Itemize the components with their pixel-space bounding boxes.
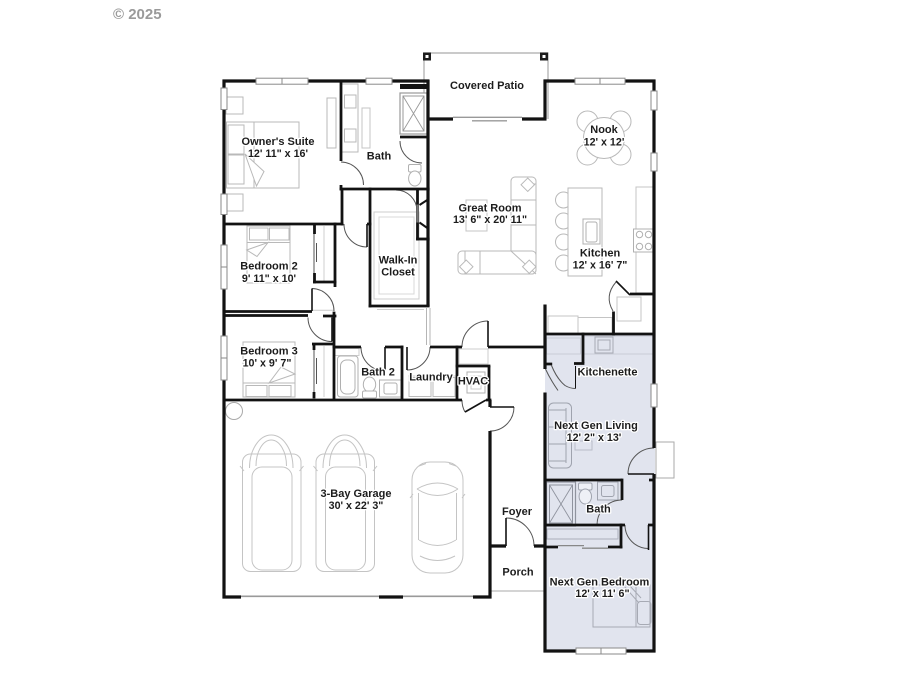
svg-text:Bath: Bath — [367, 151, 392, 163]
svg-text:HVAC: HVAC — [458, 376, 488, 388]
svg-text:13' 6" x 20' 11": 13' 6" x 20' 11" — [453, 214, 527, 226]
svg-text:Next Gen Living: Next Gen Living — [554, 420, 638, 432]
svg-text:© 2025: © 2025 — [113, 6, 162, 23]
svg-text:Bedroom 2: Bedroom 2 — [240, 261, 297, 273]
svg-text:Covered Patio: Covered Patio — [450, 80, 524, 92]
svg-text:30' x 22' 3": 30' x 22' 3" — [329, 500, 384, 512]
svg-text:Owner's Suite: Owner's Suite — [242, 136, 315, 148]
svg-text:Porch: Porch — [502, 567, 533, 579]
svg-text:3-Bay Garage: 3-Bay Garage — [321, 488, 392, 500]
svg-text:9' 11" x 10': 9' 11" x 10' — [242, 273, 296, 285]
svg-text:Nook: Nook — [590, 124, 618, 136]
svg-text:12' 11" x 16': 12' 11" x 16' — [248, 148, 308, 160]
svg-text:Closet: Closet — [381, 267, 415, 279]
svg-text:12' 2" x 13': 12' 2" x 13' — [567, 432, 622, 444]
svg-text:Great Room: Great Room — [459, 203, 522, 215]
svg-text:Walk-In: Walk-In — [379, 255, 418, 267]
svg-text:Kitchenette: Kitchenette — [578, 367, 638, 379]
svg-text:Kitchen: Kitchen — [580, 248, 621, 260]
svg-text:10' x 9' 7": 10' x 9' 7" — [243, 358, 292, 370]
svg-text:Next Gen Bedroom: Next Gen Bedroom — [550, 577, 650, 589]
svg-text:12' x 12': 12' x 12' — [584, 137, 625, 149]
svg-text:Bath 2: Bath 2 — [361, 367, 395, 379]
svg-text:Bedroom 3: Bedroom 3 — [240, 346, 297, 358]
svg-text:Foyer: Foyer — [502, 506, 533, 518]
svg-text:Laundry: Laundry — [409, 372, 453, 384]
svg-text:12' x 11' 6": 12' x 11' 6" — [575, 588, 629, 600]
svg-text:Bath: Bath — [586, 504, 611, 516]
svg-text:12' x 16' 7": 12' x 16' 7" — [573, 260, 628, 272]
